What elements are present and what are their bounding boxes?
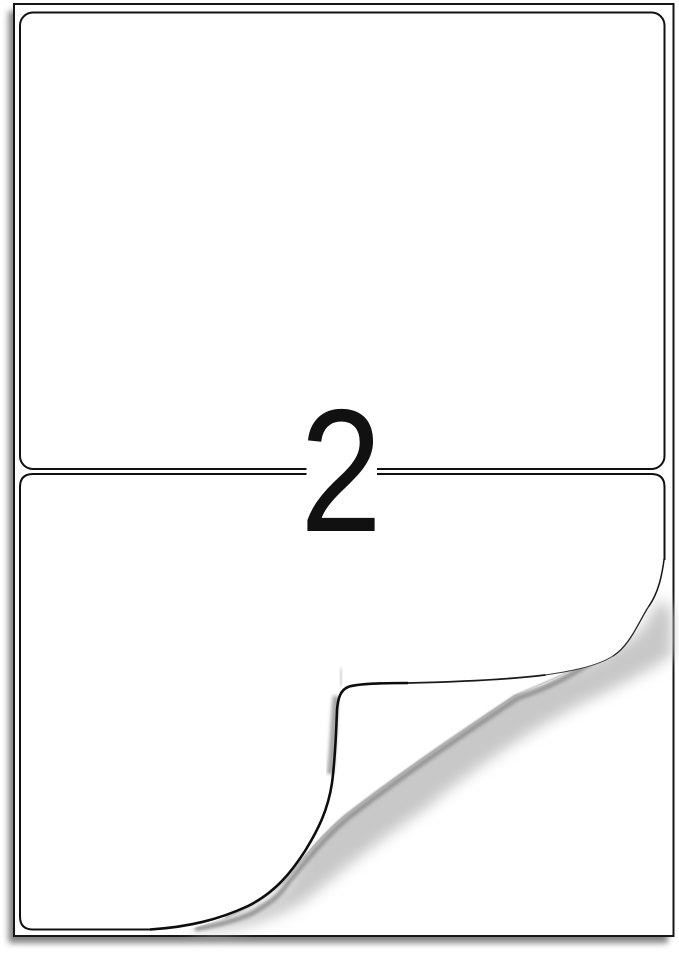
svg-text:2: 2 [300, 373, 382, 569]
